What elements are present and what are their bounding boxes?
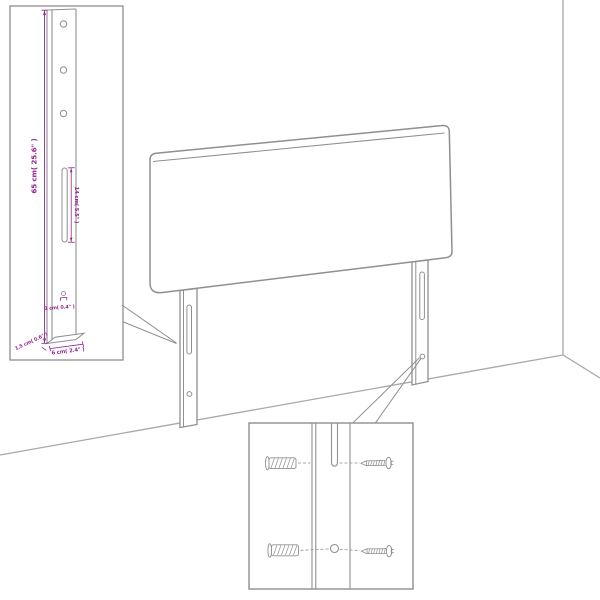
wall-plug-bottom-body: [272, 545, 299, 556]
slot-dim-label: 14 cm( 5.5" ): [73, 187, 79, 224]
floor-line-right: [563, 355, 600, 378]
inset1-hole-3: [60, 110, 66, 116]
inset1-slot: [62, 168, 67, 242]
left-leg-hole: [187, 392, 192, 397]
inset1-hole-2: [60, 67, 66, 73]
right-leg: [412, 260, 428, 385]
wall-plug-bottom: [268, 544, 299, 558]
left-leg: [180, 289, 197, 428]
right-leg-slot: [420, 272, 425, 320]
diagram-canvas: 65 cm( 25.6" ) 14 cm( 5.5" ) 1 cm( 0.4" …: [0, 0, 600, 600]
headboard-face: [150, 125, 452, 292]
mounting-inset: [249, 358, 421, 589]
headboard-diagram: 65 cm( 25.6" ) 14 cm( 5.5" ) 1 cm( 0.4" …: [0, 0, 600, 600]
inset1-bottom-hole: [61, 291, 65, 295]
height-dim-label: 65 cm( 25.6" ): [30, 138, 39, 193]
inset1-hole-1: [60, 21, 66, 27]
left-leg-slot: [187, 305, 192, 354]
inset1-leader-lines: [122, 305, 177, 344]
headboard-panel: [150, 125, 452, 292]
wall-plug-top: [266, 457, 297, 470]
inset2-hole: [331, 545, 339, 553]
